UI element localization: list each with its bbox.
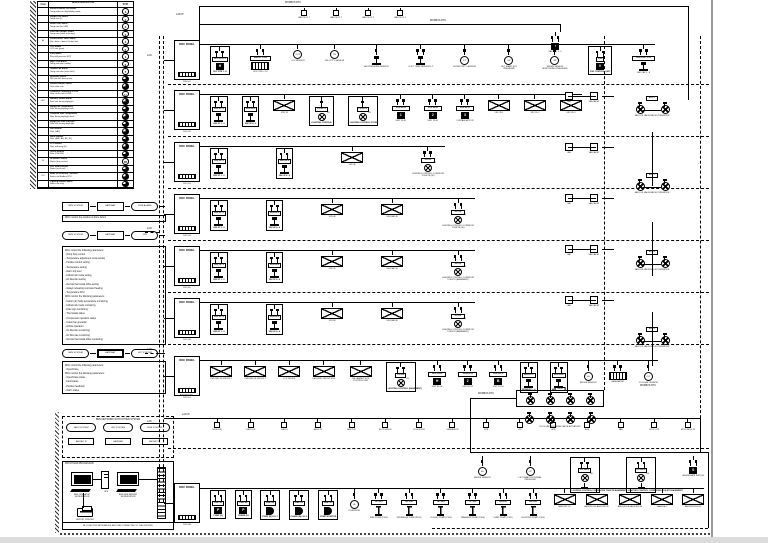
legend-symbol-cell: L bbox=[118, 181, 133, 188]
ddc-panel-3: DDC PANELDDC-03 bbox=[174, 142, 200, 182]
device-symbol bbox=[524, 379, 533, 388]
legend-desc: Combined Frequency of VSDRate via the se… bbox=[49, 91, 118, 98]
sensor-flags-icon bbox=[214, 309, 223, 315]
damper-icon bbox=[278, 366, 300, 377]
sensor-flags-icon bbox=[613, 365, 622, 371]
device-label: VRV/VAV 4F bbox=[386, 216, 398, 218]
motorized-valve-icon bbox=[566, 412, 575, 424]
right-zone-dashed-rail bbox=[700, 36, 701, 448]
controller-label: VAV PILOT 2 bbox=[330, 17, 342, 19]
device: PMP-04 PHASE (B) LVL-2 bbox=[289, 490, 310, 520]
device-label: JOCKEY PUMP (P103) bbox=[430, 517, 451, 519]
relay-icon: H bbox=[433, 378, 441, 385]
sensor-flags-icon bbox=[215, 51, 224, 57]
actuator-icon bbox=[214, 165, 223, 174]
damper-icon bbox=[244, 366, 266, 377]
damper-icon bbox=[341, 152, 363, 163]
actuator-icon bbox=[270, 321, 279, 330]
device-tag: VAV-5F-1 bbox=[212, 263, 226, 268]
device: VAV-5F-1 VAV 5F 1...3 bbox=[210, 252, 228, 283]
legend-row: Supply Fan StatusTemp rate (F) 2 bbox=[38, 16, 133, 24]
top-controller-row: VAV PILOT 1 VAV PILOT 2 VAV PILOT 3 VAV … bbox=[294, 8, 410, 19]
device-label: LIGHTING CONTROL bbox=[311, 122, 331, 124]
vav-pair: VAV VAV-CAV-HT bbox=[560, 296, 603, 318]
controller-icon bbox=[685, 422, 691, 428]
legend-desc-line2: Rate with daily (O) bbox=[50, 146, 67, 148]
lan-label: LAN bbox=[147, 54, 152, 57]
legend-symbol-icon: 5 bbox=[122, 46, 129, 53]
device: DELIVERY GROUP B1-F bbox=[312, 361, 335, 380]
device-symbol bbox=[682, 494, 704, 505]
device-tag: FP-101 bbox=[371, 500, 387, 505]
flow-connector-line bbox=[125, 206, 131, 207]
valve-matrix: VAV-B FCU & VAV MOTORIZED VALVE ACTUATOR… bbox=[516, 390, 604, 428]
device: VAV-4F-1 VAV 4F 1...3 bbox=[210, 200, 228, 231]
system-pill: VRV SYSTEM bbox=[103, 423, 133, 432]
device-symbol: LN bbox=[581, 474, 589, 489]
motorized-valve-icon bbox=[586, 393, 595, 405]
device: VAV-2F-C 3 CURTAIN MOTOR bbox=[456, 95, 474, 122]
motorized-valve-icon bbox=[525, 412, 534, 424]
legend-item-code bbox=[38, 181, 49, 188]
device-label: VAV 3F 4...6 bbox=[279, 175, 290, 177]
legend-symbol-cell: 2 bbox=[118, 16, 133, 23]
device-symbol bbox=[639, 62, 648, 71]
device-label: PHASE (B) LVL-2 bbox=[291, 516, 308, 518]
panel-tag: DDC-06 bbox=[171, 339, 203, 341]
sensor-flags-icon bbox=[428, 99, 437, 105]
vav-label: VAV bbox=[567, 101, 571, 103]
sensor-flags-icon bbox=[214, 205, 223, 211]
device: VAV-2F-A 1 UNIT 2F-01 bbox=[392, 95, 410, 122]
device-tag: VAV-3F-2 bbox=[278, 159, 292, 164]
panel-tag: DDC-05 bbox=[171, 287, 203, 289]
ahu-tag: AHU-1 bbox=[646, 96, 658, 101]
device-symbol: SP bbox=[550, 56, 559, 65]
matrix-tag: VAV-B bbox=[555, 387, 566, 391]
legend-row: AO Standby Smoke AlarmDuct rate during d… bbox=[38, 98, 133, 106]
device: AHU/VRV/FCU B bbox=[682, 489, 704, 508]
damper-icon bbox=[651, 494, 673, 505]
sensor-flags-icon bbox=[499, 493, 508, 499]
device: FP-101 FIRE PUMP (P101) bbox=[370, 489, 388, 519]
relay-icon: 2 bbox=[464, 378, 472, 385]
terminal-block-icon bbox=[178, 226, 196, 231]
sensor-flags-icon bbox=[587, 365, 590, 371]
device-symbol: LN bbox=[454, 320, 462, 328]
lighting-icon: LN bbox=[637, 474, 645, 482]
legend-desc-line2: Temp rate after (extra limit) bbox=[50, 71, 74, 73]
workstation-box: FRONT END PROCESSOR BMS OPERATOR WORKSTA… bbox=[62, 461, 174, 530]
bus-device-label: FAN bbox=[619, 429, 623, 431]
sensor-flags-icon bbox=[529, 493, 538, 499]
damper-icon bbox=[488, 100, 510, 111]
legend-row: Fresh Air Damper StatusTemp rate (value … bbox=[38, 31, 133, 39]
device-label: TRANSFER PUMP (P104) bbox=[460, 517, 484, 519]
lan-ip-label: LAN IP bbox=[182, 413, 190, 416]
device-symbol: P bbox=[214, 507, 222, 514]
top-controller: VAV PILOT 2 bbox=[326, 8, 346, 19]
device-label: LIFT SHAFT EXT PRESSURE bbox=[496, 66, 522, 71]
device-label: VELOCITY SENSOR bbox=[325, 60, 344, 62]
legend-symbol-cell: DI bbox=[118, 158, 133, 165]
legend-symbol-cell: 3 bbox=[118, 31, 133, 38]
sensor-flags-icon bbox=[294, 495, 303, 501]
device-symbol: 2 bbox=[429, 112, 437, 119]
device-symbol bbox=[244, 366, 266, 377]
device: LC-3F LN LIGHTING CONTROL CORRIDOR TOILE… bbox=[411, 147, 445, 178]
device-label: LIGHTING CONTROL (BASEMENT) bbox=[388, 388, 414, 390]
device-row-7: CHILLER-1F GROUP 1 CHILLER-2F GROUP 2 LC… bbox=[210, 360, 658, 393]
device-tag: SU-105 bbox=[495, 500, 511, 505]
server-monitor-icon bbox=[117, 472, 139, 486]
sensor-flags-icon bbox=[280, 153, 289, 159]
controller-icon bbox=[281, 422, 287, 428]
bus-device: AHU-2-2F bbox=[340, 419, 364, 431]
controller-icon bbox=[214, 422, 220, 428]
operator-workstation-label: BMS OPERATOR WORKSTATION bbox=[67, 494, 97, 499]
device: RELAY PCB RLY PCB 1...16 bbox=[250, 45, 271, 73]
device-symbol: S bbox=[689, 467, 697, 474]
pump-icon bbox=[266, 507, 274, 515]
legend-symbol-icon: 4 bbox=[122, 38, 129, 45]
legend-desc: Supply Air TemperatureRate during day/ni… bbox=[49, 106, 118, 113]
legend-symbol-cell: 2 bbox=[118, 23, 133, 30]
flow-connector-line bbox=[90, 206, 96, 207]
device-tag: VAV-2F-C bbox=[456, 106, 474, 111]
lighting-icon: LN bbox=[454, 216, 462, 224]
device-symbol: H bbox=[216, 63, 224, 70]
note-line: - Normal thermostat office monitoring bbox=[65, 338, 163, 342]
device-symbol: VS bbox=[330, 50, 339, 59]
device: VRV 2F-1 bbox=[488, 95, 510, 114]
sensor-flags-icon bbox=[270, 309, 279, 315]
sensor-gauge-icon: CO2 bbox=[293, 50, 302, 59]
connector-line bbox=[139, 479, 157, 480]
vav-box-icon bbox=[590, 194, 598, 202]
legend-desc-line2: Status via Modbus RTU bbox=[50, 176, 72, 178]
device-label: CHILLER-1F GROUP 1 bbox=[210, 378, 231, 380]
legend-row: On/Off ModuleRate (ON/OFF) O bbox=[38, 151, 133, 159]
device-label: VRV 3F bbox=[349, 164, 356, 166]
actuator-icon bbox=[372, 56, 381, 65]
motorized-valve-icon bbox=[635, 179, 644, 191]
device-symbol: LN bbox=[359, 113, 367, 121]
legend-symbol-cell: 5 bbox=[118, 46, 133, 53]
valve-matrix-row bbox=[516, 390, 604, 407]
legend-row: Smoke Damper StatusDuct static rate D bbox=[38, 83, 133, 91]
legend-item-code bbox=[38, 166, 49, 173]
sensor-gauge-icon: SS bbox=[478, 467, 487, 476]
actuator-icon bbox=[524, 379, 533, 388]
flow-node-wrap: BMS SYSTEM bbox=[62, 231, 97, 240]
device: PMP-03 PUMP (B) LVL-1 bbox=[260, 490, 279, 520]
legend-row: Supply Air Duct PressureRate with factor… bbox=[38, 121, 133, 129]
legend-symbol-icon: V bbox=[122, 128, 129, 135]
device-label: VAV 2F 1...3 bbox=[213, 123, 224, 125]
notes-box-vrv-parameters: DDC control the following parameters:- (… bbox=[62, 246, 166, 345]
motorized-valve-icon bbox=[660, 333, 669, 345]
sensor-flags-icon bbox=[553, 49, 556, 55]
device-label: SMOKE SENSOR bbox=[474, 477, 491, 479]
sensor-flags-icon bbox=[433, 365, 442, 371]
modbus-label: MODBUS RTU bbox=[285, 1, 301, 4]
device-label: DAIKIN A.C bbox=[657, 506, 668, 508]
grounding-caption: ALL ELECTRIC APPLIANCES MUST BE CONNECTE… bbox=[63, 522, 173, 529]
ddc-panel-8: DDC PANELDDC-08 bbox=[174, 483, 200, 523]
device-label: UNIT B1-02 bbox=[462, 386, 473, 388]
legend-desc-line2: Duct static rate bbox=[50, 86, 64, 88]
device-label: VRV 2F-2 bbox=[530, 112, 539, 114]
damper-icon bbox=[381, 308, 403, 319]
device-symbol: LP bbox=[526, 467, 535, 476]
vav-box-icon bbox=[565, 245, 573, 253]
device-label: PA CABINET ECS CONTROL UNIT bbox=[348, 378, 374, 383]
printer-icon bbox=[77, 508, 93, 517]
sensor-flags-icon bbox=[214, 495, 223, 501]
device-symbol bbox=[278, 366, 300, 377]
device-label: LIGHTING CONTROL CORRIDOR TOILETS (BASEM… bbox=[441, 329, 475, 334]
notes-lines: DDC control the following parameters:- (… bbox=[65, 249, 163, 343]
device-tag: SP-102 bbox=[401, 500, 417, 505]
device-row-2: VAV-2F-1 VAV 2F 1...3 VAV-2F-2 VAV 2F 4.… bbox=[210, 94, 582, 127]
device-symbol: CO2 bbox=[293, 50, 302, 59]
legend-desc: Supply Fan StatusTemp rate (F) bbox=[49, 16, 118, 23]
device: VRV 4F bbox=[321, 199, 343, 218]
device-label: VAV 5F 4...6 bbox=[269, 279, 280, 281]
cluster-label: FAN COIL VALVE/VAV MOTORIZATION bbox=[629, 115, 675, 117]
device: PA CABINET ECS CONTROL UNIT bbox=[348, 361, 374, 383]
sensor-flags-icon bbox=[689, 460, 698, 466]
panel-bus-link bbox=[200, 94, 210, 95]
sensor-flags-icon bbox=[454, 307, 463, 313]
device-tag: VAV-4F-1 bbox=[212, 211, 226, 216]
legend-symbol-icon: T bbox=[122, 106, 129, 113]
riser-tap bbox=[164, 110, 174, 111]
sensor-flags-icon bbox=[405, 493, 414, 499]
system-pill: FIRE SYSTEM bbox=[140, 423, 170, 432]
device-tag: JP-103 bbox=[433, 500, 448, 505]
riser-tap bbox=[164, 214, 174, 215]
lighting-icon: LN bbox=[359, 113, 367, 121]
bus-device-label: GENERATOR bbox=[447, 429, 459, 431]
sensor-flags-icon bbox=[580, 462, 589, 468]
device-label: UNIT 2F-01 bbox=[395, 120, 406, 122]
legend-desc-line2: Status (dry contact) bbox=[50, 161, 68, 163]
device: VRV 2F bbox=[273, 95, 295, 114]
device: DAIKIN A.C bbox=[651, 489, 673, 508]
controller-icon bbox=[397, 10, 403, 16]
bus-device-label: AOB bbox=[585, 429, 589, 431]
device: VAV-2F-1 VAV 2F 1...3 bbox=[210, 96, 228, 127]
ups-tower-icon bbox=[101, 471, 109, 489]
legend-desc: Standby Smoke AlarmDuct rate during day/… bbox=[49, 98, 118, 105]
legend-desc: CO2 StatusCO2 rate (ppm) bbox=[49, 46, 118, 53]
enclosure-line bbox=[708, 452, 709, 528]
lan-riser-line bbox=[163, 36, 164, 502]
device-symbol bbox=[416, 56, 425, 65]
actuator-icon bbox=[270, 269, 279, 278]
device: VSD V VSD CONTROL UNIT bbox=[588, 46, 612, 75]
device: VRV 2F-2 bbox=[524, 95, 546, 114]
device: VRV 5F bbox=[321, 251, 343, 270]
machine-icon bbox=[251, 62, 269, 70]
sensor-flags-icon bbox=[436, 493, 445, 499]
vav-box-icon bbox=[565, 143, 573, 151]
legend-row: DI DI Module SensorStatus (dry contact) … bbox=[38, 158, 133, 166]
bus-device-label: CHLR-2-2F bbox=[246, 429, 256, 431]
device-tag: BP-106 bbox=[525, 500, 541, 505]
device: VAV-B1-A H UNIT B1-01 bbox=[428, 361, 446, 388]
bus-device-label: MCCP-VRV-2F bbox=[379, 429, 392, 431]
device-label: VRV 4F bbox=[329, 216, 336, 218]
legend-header-desc: DEVICE DESCRIPTION bbox=[49, 2, 118, 7]
panel-bus-link bbox=[200, 360, 210, 361]
device-tag: PMP-01 bbox=[212, 501, 224, 506]
modbus-label: MODBUS RTU bbox=[430, 19, 446, 22]
panel-tag: DDC-02 bbox=[171, 131, 203, 133]
bus-device: AHU-1-2F bbox=[306, 419, 330, 431]
flow-node-wrap: GATEWAY bbox=[97, 349, 132, 358]
legend-symbol-icon: 7 bbox=[122, 68, 129, 75]
device: AHU/VRV 1F bbox=[554, 489, 576, 508]
cluster-connector bbox=[652, 132, 653, 186]
motorized-valve-icon bbox=[660, 179, 669, 191]
device-symbol bbox=[280, 165, 289, 174]
lighting-icon: LN bbox=[397, 379, 405, 387]
device-label: SUMP PUMP (P105) bbox=[494, 517, 513, 519]
actuator-icon bbox=[214, 217, 223, 226]
panel-bus-link bbox=[200, 250, 210, 251]
device-symbol: SS bbox=[478, 467, 487, 476]
valve-matrix-row bbox=[516, 410, 604, 425]
sensor-flags-icon bbox=[554, 367, 563, 373]
legend-desc: Return Fan StatusTemp rate (for OFF) bbox=[49, 23, 118, 30]
legend-symbol-cell: G bbox=[118, 173, 133, 180]
legend-item-code bbox=[38, 76, 49, 83]
sensor-flags-icon bbox=[246, 101, 255, 107]
controller-icon bbox=[483, 422, 489, 428]
legend-desc-line2: Temp rate after cooling bbox=[50, 63, 71, 65]
device: LC-6F LN LIGHTING CONTROL CORRIDOR TOILE… bbox=[441, 303, 475, 334]
cluster-connector bbox=[652, 222, 653, 276]
vav-pair: VAV VAV-CAV-HT bbox=[560, 143, 603, 165]
device-symbol: FT bbox=[460, 56, 469, 65]
notes-lines: DDC control the following parameters:- O… bbox=[65, 364, 163, 393]
panel-bus-link bbox=[200, 488, 210, 489]
legend-item-code: DI bbox=[38, 158, 49, 165]
flow-node: FIRE ALARM bbox=[131, 202, 158, 211]
note-zone-defect: DDC monitor the position of Zone defect bbox=[62, 215, 166, 222]
pump-icon bbox=[324, 507, 332, 515]
device-symbol bbox=[469, 506, 476, 516]
legend-symbol-cell: P bbox=[118, 113, 133, 120]
legend-row: AI Chilled Water Valve StatusRun alarm -… bbox=[38, 38, 133, 46]
damper-icon bbox=[210, 366, 232, 377]
device-tag: VAV-2F-B bbox=[424, 106, 442, 111]
device: PMP-05 PUMP MONITOR bbox=[318, 490, 338, 520]
flow-node: BMS SYSTEM bbox=[62, 202, 89, 211]
motorized-valve-icon bbox=[566, 393, 575, 405]
device: AIR PRESSURE SENSOR bbox=[364, 45, 388, 68]
motorized-valve-icon bbox=[635, 102, 644, 114]
bus-link bbox=[164, 418, 205, 419]
legend-desc-line2: Duct rate during day/night bbox=[50, 101, 73, 103]
sensor-gauge-icon: LP bbox=[526, 467, 535, 476]
riser-tap bbox=[164, 376, 174, 377]
legend-desc-line2: RH rate with factory limit bbox=[50, 78, 72, 80]
legend-symbol-icon: M bbox=[122, 166, 129, 173]
device-label: VAV 3F 1...3 bbox=[213, 175, 224, 177]
relay-icon: 3 bbox=[461, 112, 469, 119]
ddc-panel-1: DDC PANELDDC-01 bbox=[174, 40, 200, 80]
actuator-icon bbox=[214, 321, 223, 330]
legend-symbol-cell: T bbox=[118, 106, 133, 113]
device-symbol bbox=[437, 506, 444, 516]
top-controller: VAV PILOT 1 bbox=[294, 8, 314, 19]
motorized-valve-icon bbox=[635, 256, 644, 268]
legend-desc-line2: Filter diff pressure (DP) bbox=[50, 56, 71, 58]
device-row-4: VAV-4F-1 VAV 4F 1...3 VAV-4F-2 VAV 4F 4.… bbox=[210, 198, 475, 231]
workstation-title: FRONT END PROCESSOR bbox=[65, 463, 94, 465]
device: JP-103 JOCKEY PUMP (P103) bbox=[430, 489, 451, 519]
legend-row: CO2 StatusCO2 rate (ppm) 5 bbox=[38, 46, 133, 54]
legend-desc: Supply Air Duct PressureRate with factor… bbox=[49, 121, 118, 128]
legend-item-code bbox=[38, 151, 49, 158]
bus-device-label: AHU-1-2F bbox=[314, 429, 323, 431]
bus-device: MCCP-BLDG-2F bbox=[676, 419, 700, 431]
legend-desc: LCP ModuleRate with daily (O) bbox=[49, 143, 118, 150]
bus-device: CHLR-2-2F bbox=[239, 419, 263, 431]
panel-tag: DDC-04 bbox=[171, 235, 203, 237]
controller-label: VAV PILOT 4 bbox=[394, 17, 406, 19]
riser-tap bbox=[164, 503, 174, 504]
legend-item-code: AI bbox=[38, 38, 49, 45]
device-label: PUMP MONITOR bbox=[320, 516, 336, 518]
device: VRV/VAV 4F bbox=[381, 199, 403, 218]
bus-drop-line bbox=[688, 6, 689, 100]
legend-symbol-cell: M bbox=[118, 166, 133, 173]
legend-row: High / Low AlarmTemp rate after cooling … bbox=[38, 61, 133, 69]
top-controller: VAV PILOT 4 bbox=[390, 8, 410, 19]
legend-symbol-icon: DI bbox=[122, 158, 129, 165]
device-label: DELIVERY GROUP B1-F bbox=[312, 378, 335, 380]
sensor-flags-icon bbox=[463, 49, 466, 55]
legend-table: ITEM DEVICE DESCRIPTION SYM. Smoke Exhau… bbox=[37, 1, 134, 189]
device: RLY-PCB-1 H RLY PCB 1...8 bbox=[210, 46, 230, 75]
legend-row: Static ModuleRate (AHU, AH, BF, JU) A bbox=[38, 136, 133, 144]
device-label: LIGHTING CONTROL CORRIDOR TOILETS (BASEM… bbox=[441, 277, 475, 282]
device: VAV-6F-2 VAV 6F 4...6 bbox=[266, 304, 284, 335]
sensor-flags-icon bbox=[214, 101, 223, 107]
device-symbol bbox=[321, 204, 343, 215]
device-symbol: LN bbox=[637, 474, 645, 489]
legend-desc-line2: Temp rate (value at factory) bbox=[50, 33, 75, 35]
legend-symbol-icon: P bbox=[122, 113, 129, 120]
pipe-icon bbox=[406, 506, 413, 516]
device-symbol bbox=[273, 100, 295, 111]
sensor-flags-icon bbox=[468, 493, 477, 499]
panel-bus-link bbox=[200, 146, 210, 147]
terminal-block-icon bbox=[178, 122, 196, 127]
sensor-flags-icon bbox=[361, 101, 364, 107]
device-label: SPRINKLER PUMP (P102) bbox=[397, 517, 422, 519]
controller-icon bbox=[382, 422, 388, 428]
legend-row: Filter AlarmFilter diff pressure (DP) 1 bbox=[38, 53, 133, 61]
damper-icon bbox=[321, 204, 343, 215]
device: VAV-2F-B 2 UNIT 2F-02 bbox=[424, 95, 442, 122]
bus-drop-line bbox=[560, 24, 561, 32]
